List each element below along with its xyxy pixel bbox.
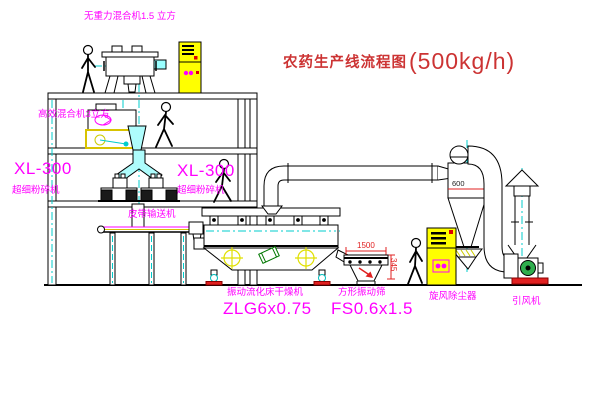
fan-machine xyxy=(504,254,548,284)
control-cabinet-1 xyxy=(179,42,201,93)
dimension-sieve-length: 1500 xyxy=(357,242,375,250)
belt-conveyor-machine xyxy=(98,222,204,285)
person-figure xyxy=(156,103,173,148)
label-mill-left-model: XL-300 xyxy=(14,160,72,177)
vibration-foot xyxy=(206,270,222,285)
top-mixer-machine xyxy=(102,46,166,93)
label-top-mixer: 无重力混合机1.5 立方 xyxy=(84,12,176,22)
label-dryer-name: 振动流化床干燥机 xyxy=(227,288,303,298)
label-fan: 引风机 xyxy=(512,297,541,307)
fluid-bed-dryer-machine xyxy=(194,208,350,285)
drawing-title-capacity: (500kg/h) xyxy=(409,48,515,75)
vibration-foot xyxy=(314,270,330,285)
vibrating-sieve-machine xyxy=(344,247,395,285)
exhaust-duct xyxy=(262,163,452,214)
label-belt-conveyor: 皮带输送机 xyxy=(128,210,176,220)
person-figure xyxy=(408,239,422,285)
label-cyclone: 旋风除尘器 xyxy=(429,292,477,302)
label-second-mixer: 高效混合机3立方 xyxy=(38,110,110,120)
label-mill-center-model: XL-300 xyxy=(177,162,235,179)
label-mill-center-name: 超细粉碎机 xyxy=(177,186,225,196)
drawing-title: 农药生产线流程图 (500kg/h) xyxy=(283,48,515,75)
cad-drawing-canvas: 农药生产线流程图 (500kg/h) 无重力混合机1.5 立方 高效混合机3立方… xyxy=(0,0,600,403)
person-figure xyxy=(82,46,95,93)
drawing-title-text: 农药生产线流程图 xyxy=(283,51,407,72)
label-dryer-model: ZLG6x0.75 xyxy=(223,300,312,317)
label-sieve-name: 方形振动筛 xyxy=(338,288,386,298)
dimension-sieve-height: 345 xyxy=(389,258,397,271)
mill-left-machine xyxy=(98,174,140,201)
dimension-cyclone: 600 xyxy=(452,180,465,188)
mill-right-machine xyxy=(138,174,180,201)
label-sieve-model: FS0.6x1.5 xyxy=(331,300,413,317)
control-cabinet-2 xyxy=(427,228,456,285)
label-mill-left-name: 超细粉碎机 xyxy=(12,186,60,196)
